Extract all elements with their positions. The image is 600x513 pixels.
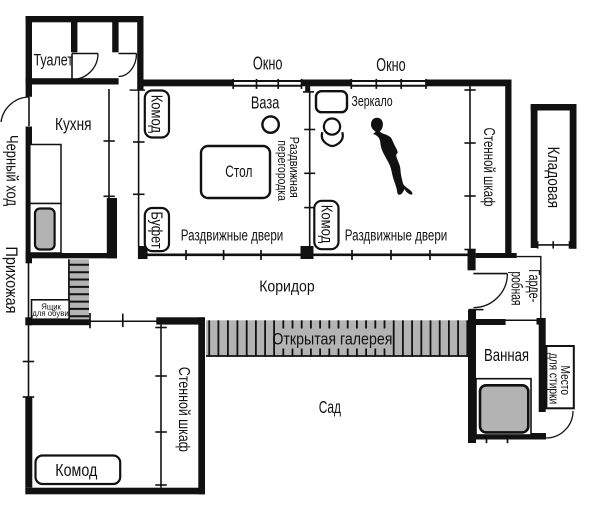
svg-text:Комод: Комод [148, 95, 165, 133]
svg-text:Прихожая: Прихожая [2, 247, 20, 314]
svg-text:Открытая галерея: Открытая галерея [272, 330, 392, 348]
svg-text:Стенной шкаф: Стенной шкаф [480, 128, 497, 207]
svg-text:Гарде-: Гарде- [525, 269, 542, 302]
svg-text:Сад: Сад [319, 397, 341, 417]
svg-text:для обуви: для обуви [32, 308, 69, 318]
svg-text:Стенной шкаф: Стенной шкаф [175, 367, 192, 452]
svg-text:Туалет: Туалет [34, 51, 74, 69]
svg-text:Буфет: Буфет [148, 212, 165, 249]
svg-text:Комод: Комод [317, 205, 334, 244]
svg-text:Кухня: Кухня [55, 114, 92, 134]
svg-text:робная: робная [508, 271, 525, 305]
svg-text:Окно: Окно [376, 55, 405, 75]
svg-text:Раздвижные двери: Раздвижные двери [181, 227, 283, 244]
svg-text:Ванная: Ванная [484, 345, 529, 365]
svg-text:Зеркало: Зеркало [351, 94, 392, 110]
svg-text:Окно: Окно [253, 54, 283, 74]
svg-text:для стирки: для стирки [547, 353, 562, 405]
svg-text:Ваза: Ваза [251, 93, 280, 113]
svg-text:Раздвижные двери: Раздвижные двери [345, 227, 448, 244]
svg-text:Кладовая: Кладовая [544, 147, 563, 209]
svg-text:Стол: Стол [225, 162, 252, 181]
svg-text:Комод: Комод [55, 460, 97, 480]
svg-text:Коридор: Коридор [259, 279, 315, 296]
svg-text:перегородка: перегородка [275, 140, 290, 201]
svg-text:Черный ход: Черный ход [3, 135, 21, 206]
